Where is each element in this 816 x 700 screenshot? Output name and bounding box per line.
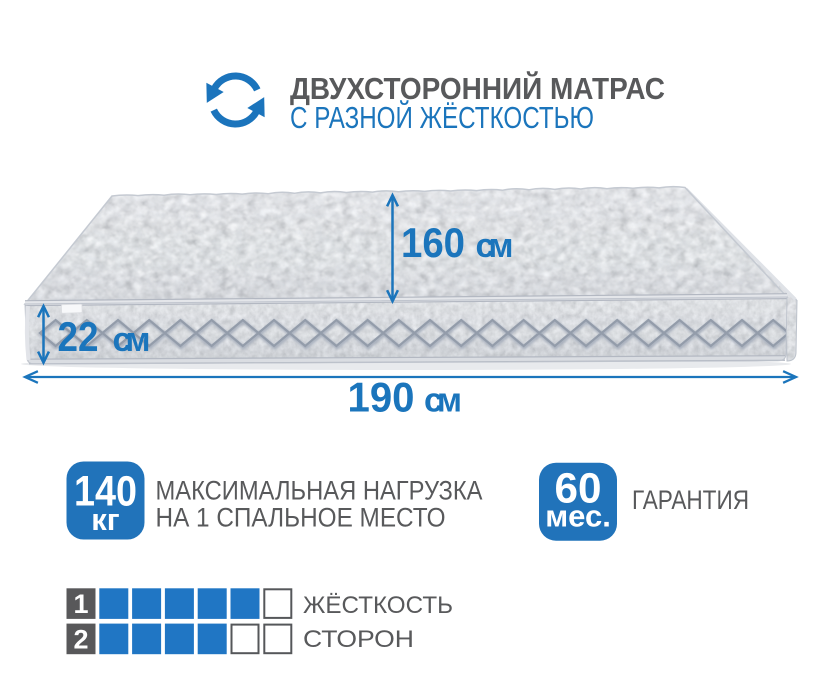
svg-text:1: 1 xyxy=(73,589,88,619)
svg-text:2: 2 xyxy=(73,624,88,654)
svg-text:мес.: мес. xyxy=(545,499,611,534)
svg-text:160см: 160см xyxy=(401,219,514,266)
svg-text:ЖЁСТКОСТЬ: ЖЁСТКОСТЬ xyxy=(303,592,453,619)
svg-text:МАКСИМАЛЬНАЯ НАГРУЗКА: МАКСИМАЛЬНАЯ НАГРУЗКА xyxy=(156,475,483,505)
svg-text:С РАЗНОЙ ЖЁСТКОСТЬЮ: С РАЗНОЙ ЖЁСТКОСТЬЮ xyxy=(290,99,594,135)
svg-text:НА 1 СПАЛЬНОЕ МЕСТО: НА 1 СПАЛЬНОЕ МЕСТО xyxy=(156,503,446,533)
svg-text:ГАРАНТИЯ: ГАРАНТИЯ xyxy=(632,485,749,515)
svg-text:190см: 190см xyxy=(348,374,463,421)
svg-text:кг: кг xyxy=(91,502,120,537)
svg-text:СТОРОН: СТОРОН xyxy=(303,626,414,653)
